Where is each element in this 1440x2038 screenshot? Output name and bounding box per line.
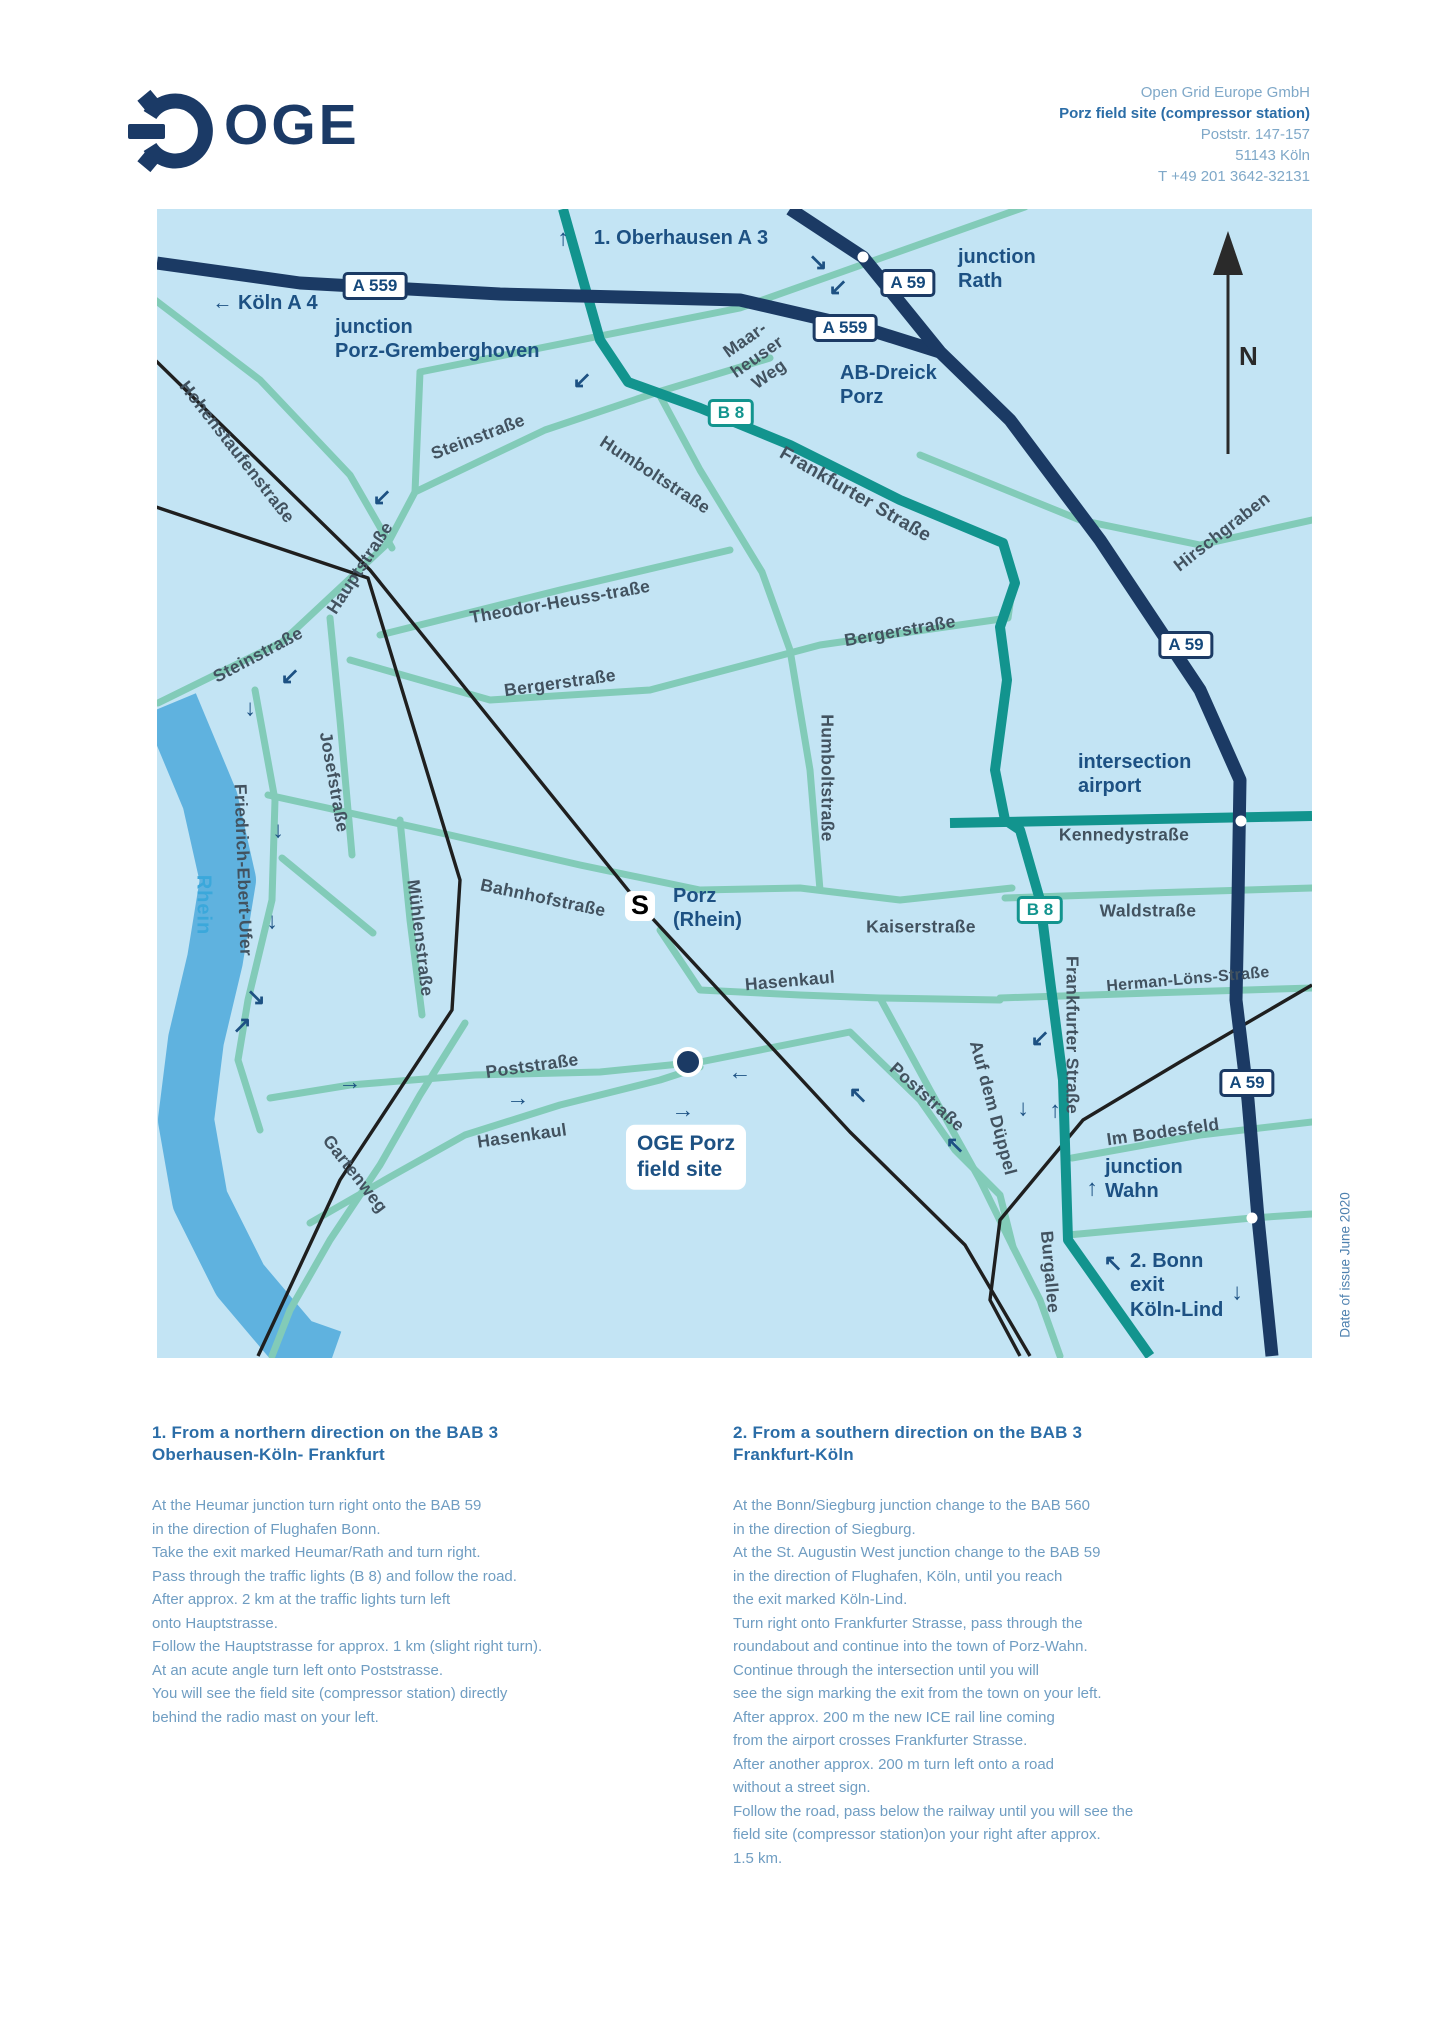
badge-b8: B 8 [1017,896,1063,924]
street-label: Waldstraße [1100,901,1197,922]
direction-arrow-icon: ↑ [1049,1097,1061,1124]
junction-dot [1236,816,1247,827]
badge-b8: B 8 [708,399,754,427]
north-arrow-head [1213,231,1243,275]
label-intersection-airport: intersection airport [1078,750,1191,799]
street-ernst-muehlendyk [282,858,373,933]
badge-a59: A 59 [880,269,935,297]
label-junction-wahn: junction Wahn [1105,1155,1183,1204]
junction-dot [1247,1213,1258,1224]
direction-arrow-icon: ↖ [1103,1250,1122,1277]
direction-arrow-icon: ← [729,1059,752,1086]
date-of-issue-note: Date of issue June 2020 [1338,1192,1353,1338]
label-koeln-a4: ← Köln A 4 [212,291,317,315]
direction-arrow-icon: ↖ [848,1082,867,1109]
road-kennedystrasse [950,816,1312,823]
direction-arrow-icon: ↓ [244,695,256,722]
logo-wordmark: OGE [224,92,360,158]
badge-a559: A 559 [813,314,878,342]
address-phone: T +49 201 3642-32131 [1059,166,1310,187]
direction-arrow-icon: ↓ [266,908,278,935]
direction-arrow-icon: ↗ [232,1012,251,1039]
street-label: Kaiserstraße [866,917,976,938]
label-porz-rhein-station: Porz (Rhein) [673,884,742,933]
direction-arrow-icon: ↓ [1231,1279,1243,1306]
sbahn-station-icon: S [625,891,655,921]
header-logo: OGE [128,86,448,178]
directions-body-1: At the Heumar junction turn right onto t… [152,1494,724,1729]
direction-arrow-icon: ↙ [828,274,847,301]
label-oberhausen-a3: 1. Oberhausen A 3 [594,226,768,250]
site-marker-dot [673,1047,703,1077]
street-label: Frankfurter Straße [1062,956,1083,1114]
direction-arrow-icon: ↘ [808,249,827,276]
street-wahn-south [1068,1214,1312,1235]
directions-section-north: 1. From a northern direction on the BAB … [152,1422,724,1729]
direction-arrow-icon: ↑ [557,225,569,252]
direction-arrow-icon: → [507,1085,530,1112]
site-map: N 1. Oberhausen A 3 ← Köln A 4 junction … [157,209,1312,1358]
badge-a59: A 59 [1158,631,1213,659]
address-site: Porz field site (compressor station) [1059,103,1310,124]
direction-arrow-icon: ↙ [572,367,591,394]
direction-arrow-icon: ↘ [246,984,265,1011]
address-block: Open Grid Europe GmbH Porz field site (c… [1059,82,1310,187]
river-label: Rhein [192,875,215,936]
label-ab-dreick-porz: AB-Dreick Porz [840,361,937,410]
direction-arrow-icon: ↑ [1086,1175,1098,1202]
directions-body-2: At the Bonn/Siegburg junction change to … [733,1494,1305,1870]
street-label: Kennedystraße [1059,825,1189,846]
street-bergerstrasse [350,590,1012,700]
directions-section-south: 2. From a southern direction on the BAB … [733,1422,1305,1870]
address-street: Poststr. 147-157 [1059,124,1310,145]
north-label: N [1239,341,1258,372]
site-callout-box: OGE Porz field site [626,1125,746,1190]
direction-arrow-icon: ↙ [1030,1025,1049,1052]
direction-arrow-icon: ↓ [1017,1095,1029,1122]
direction-arrow-icon: ↙ [372,484,391,511]
street-hasenkaul-upper [660,930,1000,1000]
street-spur [415,372,420,492]
directions-title-2: 2. From a southern direction on the BAB … [733,1422,1305,1466]
junction-dot [858,252,869,263]
oge-logo-icon [128,86,218,178]
badge-a559: A 559 [343,272,408,300]
address-company: Open Grid Europe GmbH [1059,82,1310,103]
label-junction-porz-gremberghoven: junction Porz-Gremberghoven [335,315,539,364]
directions-title-1: 1. From a northern direction on the BAB … [152,1422,724,1466]
label-bonn-exit-koeln-lind: 2. Bonn exit Köln-Lind [1130,1249,1223,1322]
direction-arrow-icon: → [672,1097,695,1124]
label-junction-rath: junction Rath [958,245,1036,294]
address-city: 51143 Köln [1059,145,1310,166]
direction-arrow-icon: ↙ [280,663,299,690]
direction-arrow-icon: → [339,1069,362,1096]
street-bahnhofstrasse-kaiserstrasse [268,795,1012,900]
direction-arrow-icon: ↖ [945,1132,964,1159]
street-label: Humboltstraße [817,714,838,841]
direction-arrow-icon: ↓ [272,817,284,844]
badge-a59: A 59 [1219,1069,1274,1097]
